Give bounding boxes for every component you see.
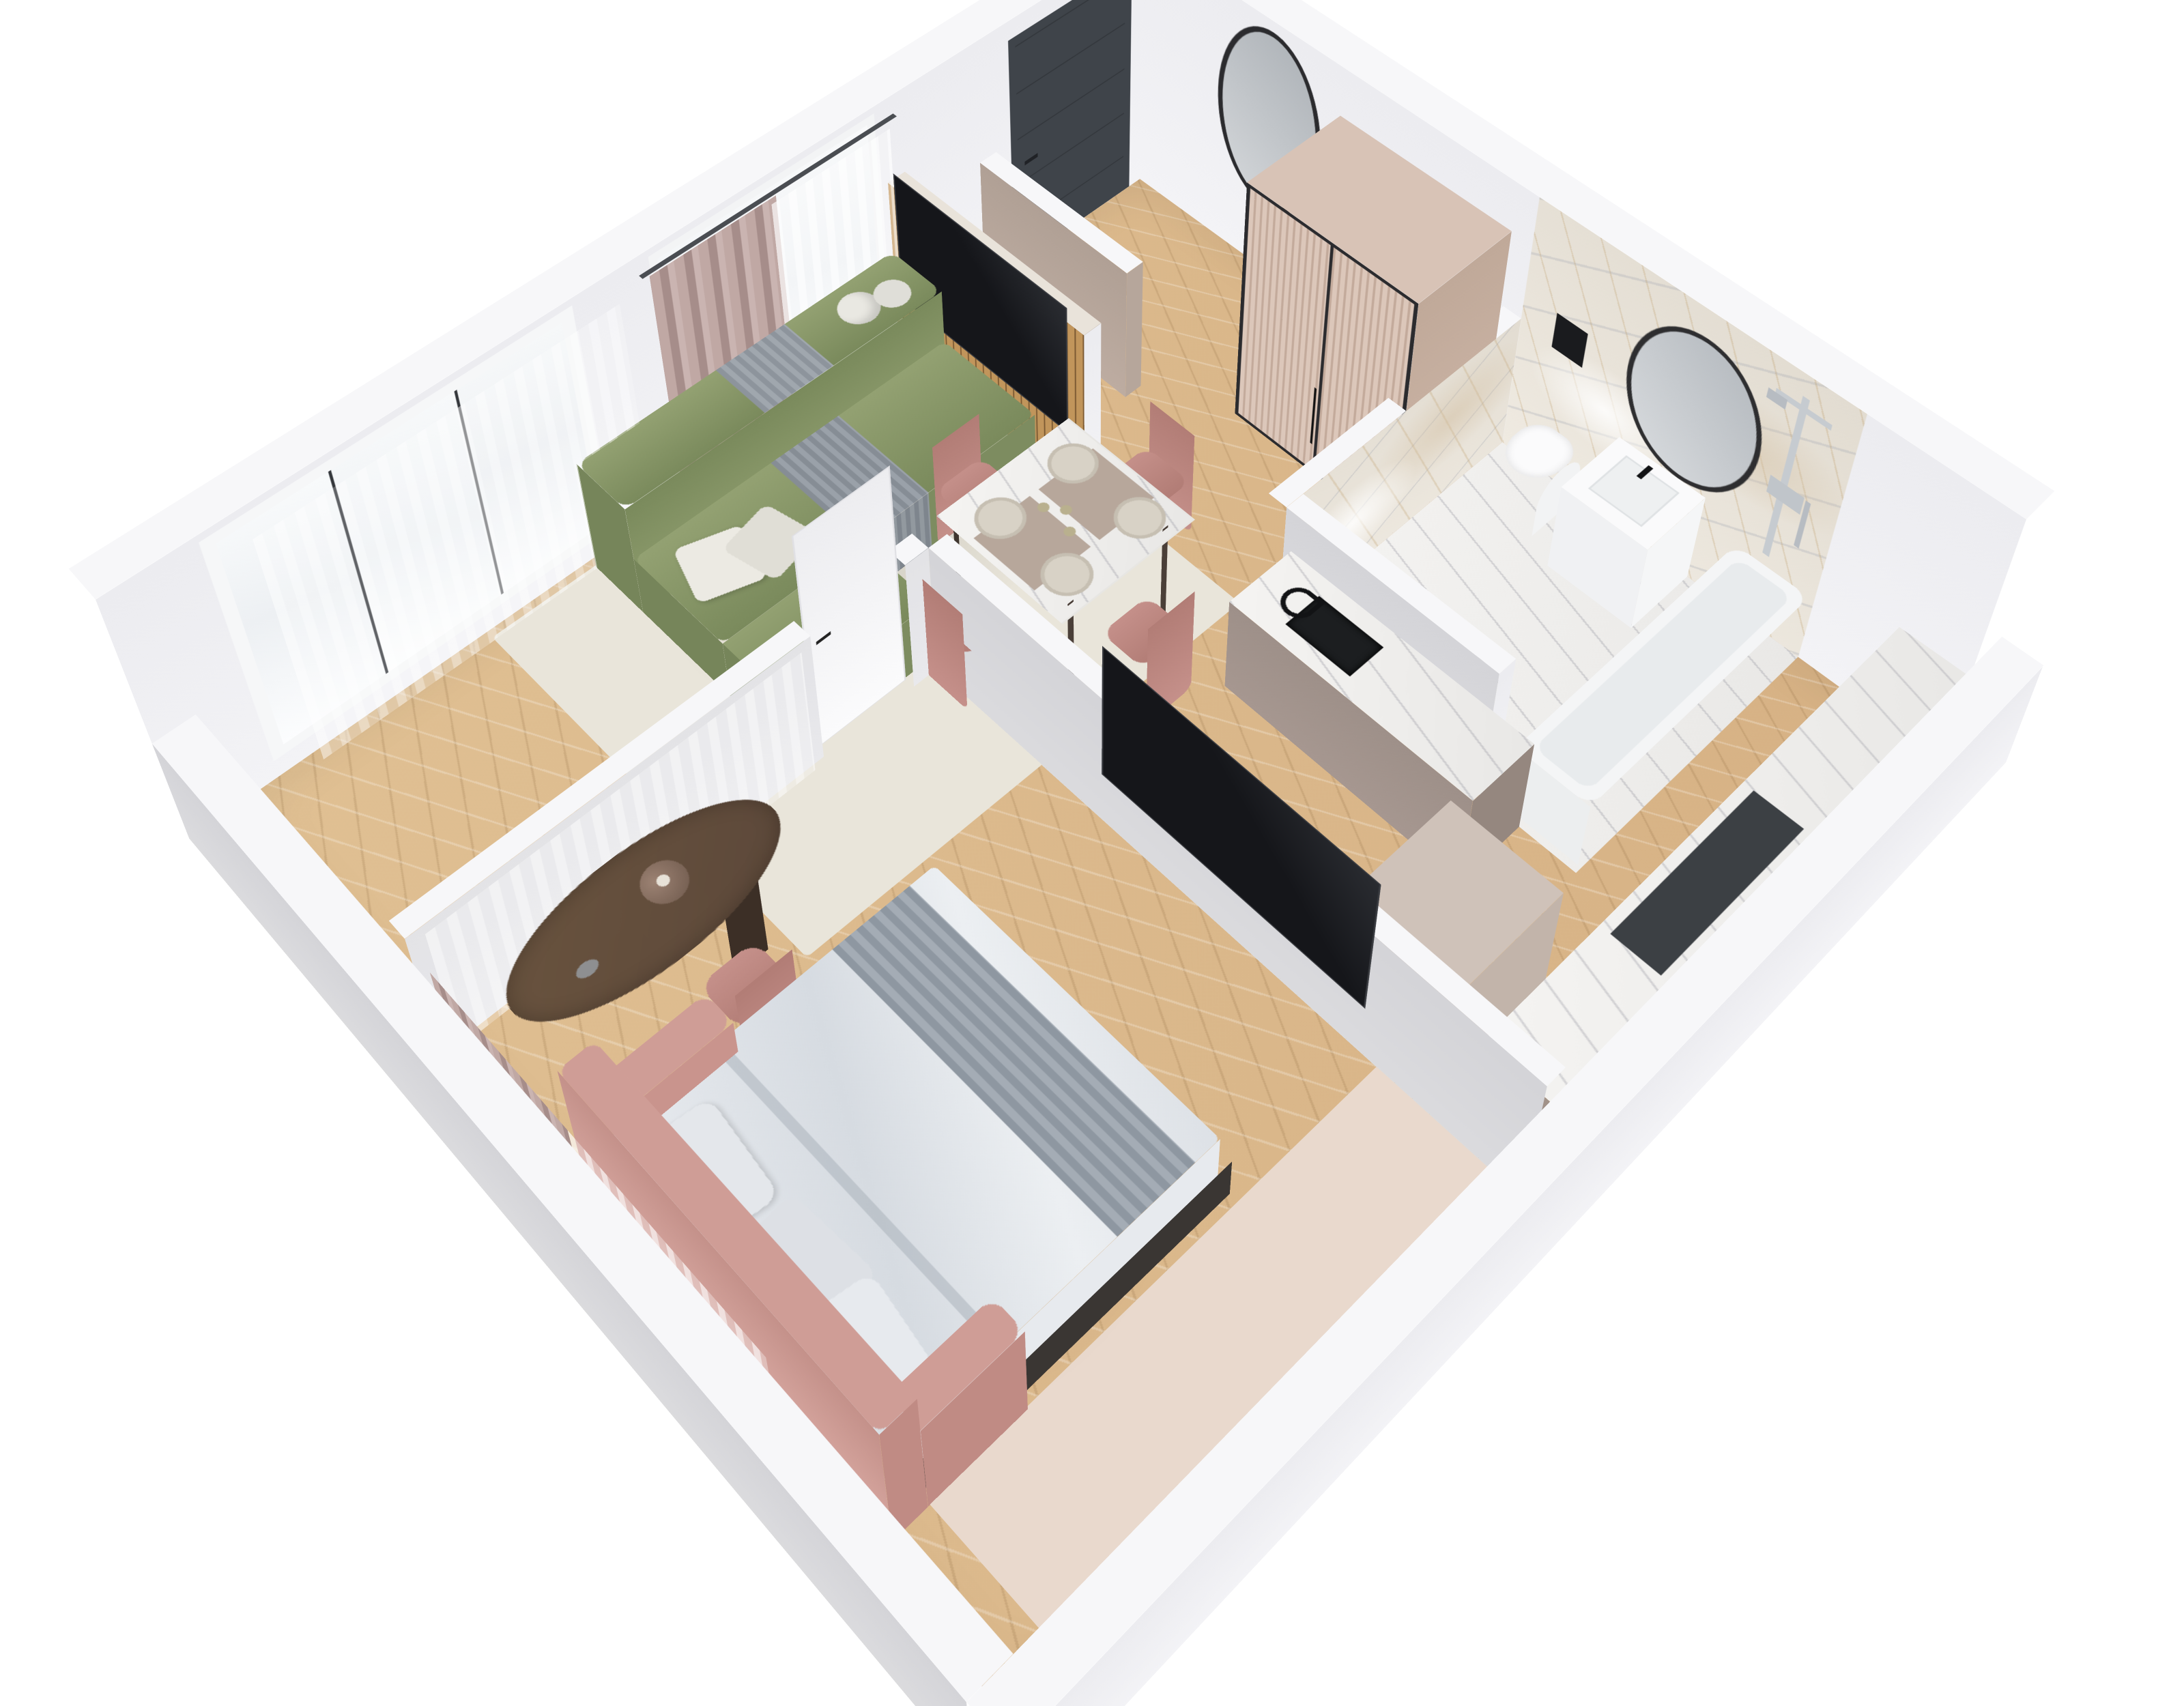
entry-door-handle — [1024, 153, 1037, 165]
bedroom-door-handle — [816, 631, 831, 645]
floorplan-scene — [0, 0, 2184, 1706]
wardrobe-door-split — [1312, 245, 1334, 472]
apartment-3d-model — [231, 179, 1940, 1706]
vestibule-partition-end — [1125, 262, 1143, 397]
desk-trinket-dish — [573, 955, 603, 982]
